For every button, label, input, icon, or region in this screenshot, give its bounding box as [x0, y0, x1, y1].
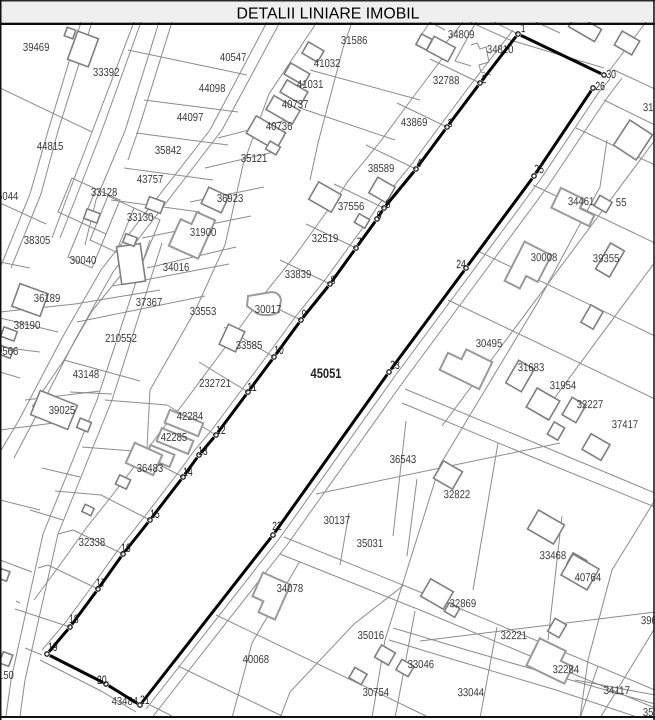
svg-text:7: 7 [357, 235, 362, 249]
svg-text:4: 4 [417, 156, 422, 170]
svg-text:36189: 36189 [34, 293, 61, 305]
svg-text:55: 55 [616, 197, 627, 209]
svg-text:35016: 35016 [358, 630, 385, 642]
svg-text:41032: 41032 [314, 58, 341, 70]
svg-text:37367: 37367 [136, 297, 163, 309]
svg-text:30017: 30017 [255, 304, 282, 316]
svg-text:15: 15 [150, 507, 160, 521]
svg-text:38589: 38589 [368, 163, 395, 175]
svg-text:20: 20 [97, 673, 107, 687]
svg-text:31683: 31683 [518, 362, 545, 374]
svg-text:10: 10 [274, 343, 284, 357]
svg-text:13: 13 [198, 444, 208, 458]
svg-text:35044: 35044 [0, 191, 19, 203]
svg-text:24: 24 [456, 257, 466, 271]
svg-text:38305: 38305 [24, 235, 51, 247]
svg-text:31900: 31900 [190, 227, 217, 239]
svg-text:30137: 30137 [324, 515, 351, 527]
svg-text:32284: 32284 [553, 664, 580, 676]
svg-text:34078: 34078 [277, 583, 304, 595]
svg-text:150: 150 [0, 670, 14, 682]
svg-text:17: 17 [96, 576, 106, 590]
svg-text:32822: 32822 [444, 489, 471, 501]
svg-text:44815: 44815 [37, 141, 64, 153]
svg-text:44097: 44097 [177, 112, 204, 124]
svg-text:33130: 33130 [127, 212, 154, 224]
svg-text:34461: 34461 [568, 196, 595, 208]
svg-text:33128: 33128 [91, 187, 118, 199]
svg-text:32227: 32227 [577, 399, 604, 411]
svg-text:18: 18 [69, 612, 79, 626]
svg-text:40764: 40764 [575, 572, 602, 584]
svg-text:36923: 36923 [217, 193, 244, 205]
svg-text:22: 22 [272, 519, 282, 533]
svg-text:38190: 38190 [14, 320, 41, 332]
svg-text:39025: 39025 [49, 405, 76, 417]
svg-text:3: 3 [448, 116, 453, 130]
svg-text:43757: 43757 [137, 174, 164, 186]
svg-text:39355: 39355 [593, 253, 620, 265]
svg-text:39469: 39469 [23, 42, 50, 54]
svg-text:30040: 30040 [70, 255, 97, 267]
svg-text:31954: 31954 [550, 380, 577, 392]
svg-text:19: 19 [48, 640, 58, 654]
svg-text:35031: 35031 [357, 538, 384, 550]
svg-text:210552: 210552 [105, 333, 137, 345]
svg-text:32519: 32519 [312, 233, 339, 245]
svg-text:40068: 40068 [243, 654, 270, 666]
svg-text:31: 31 [643, 102, 654, 114]
svg-text:33044: 33044 [458, 687, 485, 699]
svg-text:232721: 232721 [199, 378, 231, 390]
svg-text:23: 23 [390, 358, 400, 372]
svg-text:30566: 30566 [0, 346, 18, 358]
svg-text:35842: 35842 [155, 145, 182, 157]
svg-text:40736: 40736 [266, 121, 293, 133]
svg-text:9: 9 [302, 307, 307, 321]
svg-text:396: 396 [641, 615, 655, 627]
svg-text:31586: 31586 [341, 35, 368, 47]
svg-text:26: 26 [595, 79, 605, 93]
svg-text:32869: 32869 [450, 598, 477, 610]
svg-text:43148: 43148 [73, 369, 100, 381]
svg-text:32338: 32338 [79, 537, 106, 549]
svg-text:33839: 33839 [285, 269, 312, 281]
svg-text:25: 25 [534, 162, 544, 176]
svg-text:43869: 43869 [401, 117, 428, 129]
svg-text:40737: 40737 [282, 99, 309, 111]
svg-text:36543: 36543 [390, 454, 417, 466]
svg-text:35121: 35121 [241, 153, 268, 165]
svg-text:40547: 40547 [220, 52, 247, 64]
svg-text:14: 14 [183, 465, 193, 479]
svg-text:34809: 34809 [448, 29, 475, 41]
svg-text:8: 8 [331, 273, 336, 287]
svg-text:30754: 30754 [363, 687, 390, 699]
svg-text:12: 12 [216, 423, 226, 437]
svg-text:32788: 32788 [433, 75, 460, 87]
svg-text:30495: 30495 [476, 338, 503, 350]
svg-text:21: 21 [140, 693, 150, 707]
svg-text:36483: 36483 [137, 463, 164, 475]
svg-text:33553: 33553 [190, 306, 217, 318]
svg-text:45051: 45051 [311, 366, 342, 381]
svg-text:34117: 34117 [604, 685, 631, 697]
svg-text:33585: 33585 [236, 340, 263, 352]
svg-text:33046: 33046 [408, 659, 435, 671]
svg-text:11: 11 [247, 380, 257, 394]
svg-text:6: 6 [377, 208, 382, 222]
svg-text:30008: 30008 [531, 252, 558, 264]
svg-text:42285: 42285 [161, 432, 188, 444]
svg-text:37417: 37417 [612, 419, 639, 431]
svg-text:32221: 32221 [501, 630, 528, 642]
svg-text:41031: 41031 [297, 79, 324, 91]
svg-text:37556: 37556 [338, 201, 365, 213]
svg-text:44098: 44098 [199, 83, 226, 95]
svg-text:42284: 42284 [177, 411, 204, 423]
svg-text:30: 30 [606, 67, 616, 81]
svg-text:33468: 33468 [540, 550, 567, 562]
svg-text:16: 16 [121, 541, 131, 555]
svg-text:33392: 33392 [93, 67, 120, 79]
svg-text:2: 2 [482, 72, 487, 86]
svg-text:5: 5 [386, 197, 391, 211]
svg-text:DETALII LINIARE IMOBIL: DETALII LINIARE IMOBIL [237, 6, 420, 23]
svg-text:34016: 34016 [163, 262, 190, 274]
